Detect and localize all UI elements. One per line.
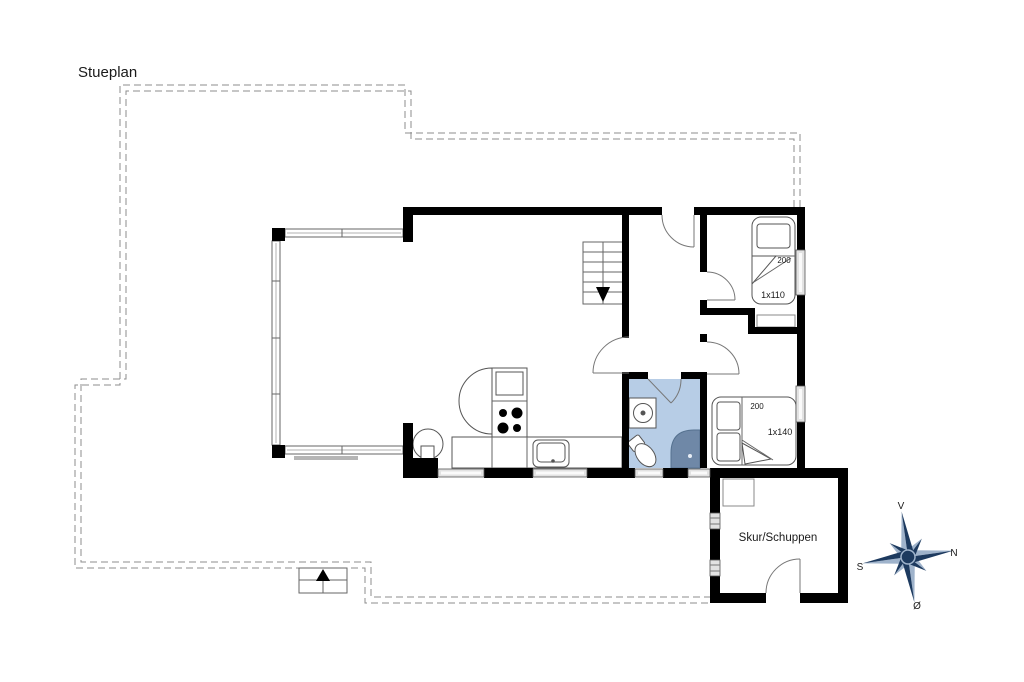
kitchen-sink xyxy=(533,440,569,467)
wardrobe xyxy=(757,315,795,327)
shed-vent-1 xyxy=(710,513,720,529)
stairs xyxy=(583,242,623,304)
pillow xyxy=(717,402,740,430)
bedroom1-door xyxy=(707,272,735,300)
livingroom-window-walls xyxy=(272,229,403,460)
compass-label-west: V xyxy=(898,501,905,512)
kitchen xyxy=(452,368,622,468)
shower-drain xyxy=(688,454,692,458)
shed-workbench xyxy=(723,479,754,506)
floorplan-drawing: Stueplan xyxy=(0,0,1024,682)
pillow xyxy=(757,224,790,248)
pillow xyxy=(717,433,740,461)
hall-door xyxy=(593,337,629,373)
compass-label-east: Ø xyxy=(913,601,921,612)
entrance-door xyxy=(662,215,694,247)
terrace-door-track xyxy=(294,456,358,460)
bed-single-size-label: 1x110 xyxy=(761,290,785,300)
bed-double-size-label: 1x140 xyxy=(768,427,793,437)
kitchen-table-halfround xyxy=(459,368,492,434)
entrance-steps xyxy=(299,568,347,593)
bedroom2-door xyxy=(707,342,739,374)
compass-dark-points xyxy=(856,505,960,609)
page-title: Stueplan xyxy=(78,64,137,81)
bed-double-length-label: 200 xyxy=(750,402,764,411)
compass-rose: V N S Ø xyxy=(856,501,960,612)
washbasin xyxy=(629,398,656,428)
shed-door xyxy=(766,559,800,593)
compass-label-south: S xyxy=(857,562,864,573)
floorplan-page: Stueplan xyxy=(0,0,1024,682)
shed-label: Skur/Schuppen xyxy=(739,532,818,544)
compass-label-north: N xyxy=(950,548,957,559)
shed-vent-2 xyxy=(710,560,720,576)
terrace-outline xyxy=(75,85,800,603)
bed-single-length-label: 200 xyxy=(777,256,791,265)
